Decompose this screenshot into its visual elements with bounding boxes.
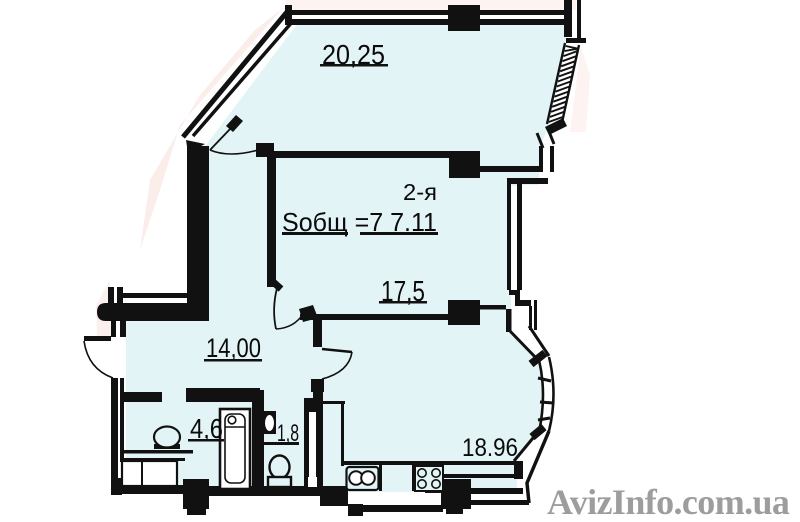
svg-text:2-я: 2-я [403, 179, 437, 205]
svg-text:1,8: 1,8 [277, 420, 299, 447]
svg-text:18.96: 18.96 [462, 434, 518, 462]
svg-text:14,00: 14,00 [206, 333, 261, 363]
svg-text:AvizInfo.com.ua: AvizInfo.com.ua [547, 482, 790, 517]
